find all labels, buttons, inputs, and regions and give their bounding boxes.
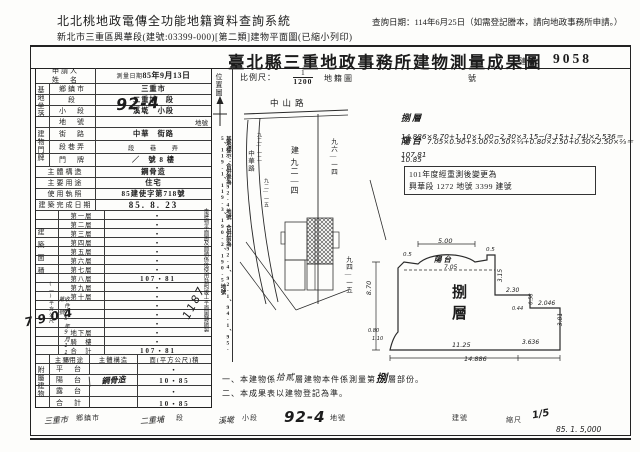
dim-left: 8.70 [365,281,373,295]
query-date-note: 查詢日期：114年6月25日（如需登記謄本，請向地政事務所申請。） [372,16,622,28]
strip-site-note: 基地標示：合併後為92-4地號 合併前為92-4、92-1、94-1、95-5、… [219,136,230,362]
strip-label-building-no: 建號 [452,413,468,423]
applicant-label: 申請人 姓 名 [36,68,95,83]
print-run-note: 85. 1. 5,000 [556,425,601,434]
table-row: 街 路中華 街路 [36,128,211,141]
table-row: 第三層・ [36,229,211,238]
parcel-main-label: 九二—四 [290,158,298,210]
dim-right-lower: 3.81 [557,313,564,326]
north-arrow-icon [213,96,227,128]
building-no-label: 建號： [519,56,543,67]
table-row: 第一層・ [36,211,211,220]
cadastral-map-label: 地籍圖 [324,73,354,84]
scale-fraction: 1 1200 [293,69,313,87]
dim-step: 2.30 [506,287,519,294]
dim-bottom-right: 3.636 [522,339,539,346]
dim-bottom-left: 11.25 [452,341,471,349]
note-1: 一、本建物係拾貳層建物本件係測量第捌層部份。 [222,370,424,386]
table-row: 地 號地號 [36,117,211,128]
remark-line-1: 101年度經重測後變更為 [409,169,591,181]
parcel-left-label-1: 九二—一二 [256,132,261,168]
table-row: 合 計10・85 [36,397,211,408]
strip-label-subsection: 小段 [242,413,258,423]
strip-label-section: 段 [176,413,184,423]
table-row: 申請人 姓 名 測量日期 85年9月13日 [36,68,211,84]
table-row: 使用執照85建使字第718號 [36,189,211,200]
table-row: 段巷弄段 巷 弄 [36,141,211,154]
formula-balcony: 陽台 7.05×0.90+5.00×0.50×⅔+0.80×2.50+0.50×… [401,131,637,167]
table-row: 建築完成日期85. 8. 23 [36,200,211,211]
parcel-main-prefix: 建 [291,145,299,156]
table-row: 第五層・ [36,247,211,256]
table-row: 鄉鎮市三重市 [36,84,211,95]
table-row: 第四層・ [36,238,211,247]
table-row: 第六層・ [36,256,211,265]
no-label: 號 [468,73,476,84]
scanned-survey-document: 北北桃地政電傳全功能地籍資料查詢系統 新北市三重區興華段(建號:03399-00… [0,0,640,452]
building-no-value: 9058 [553,51,592,67]
dim-balcony: 7.05 [444,264,457,271]
table-row: 門 牌／ 號 8 樓 [36,154,211,167]
resurvey-remark-box: 101年度經重測後變更為 興華段 1272 地號 3399 建號 [404,166,596,195]
dim-top: 5.00 [438,237,452,245]
note-2: 二、本成果表以建物登記為準。 [222,388,348,399]
note-1-handwritten-floor: 捌 [376,372,388,385]
road-top-label: 中山路 [270,97,308,109]
system-title: 北北桃地政電傳全功能地籍資料查詢系統 [57,12,291,29]
table-row: 主體構造鋼骨造 [36,167,211,178]
strip-transcribe-note: 本建物平面圖及面積係依使用執照竣工平面圖轉繪製 [202,208,207,406]
site-group-label: 基地坐落 [37,86,44,128]
note-1-handwritten-floors: 拾貳 [276,373,295,383]
document-subtitle: 新北市三重區興華段(建號:03399-000)[第二類]建物平面圖(已縮小列印) [57,30,352,43]
dim-small-b: 0.5 [486,247,495,253]
dim-bump-a: 0.80 [368,328,379,334]
annex-group-label: 附屬建物 [37,366,44,408]
survey-date-cell: 測量日期 85年9月13日 [95,68,211,83]
area-group-label: 建築面積 [37,228,44,308]
form-title: 臺北縣三重地政事務所建物測量成果圖 [228,49,543,73]
strip-hand-parcel: 92-4 [284,408,326,426]
table-row: 主要用途住宅 [36,178,211,189]
strip-hand-township: 三重市 [44,414,69,427]
strip-label-parcel: 地號 [330,413,346,423]
parcel-right-lower-label: 九四—一五 [344,256,351,308]
table-row: 第九層・ [36,283,211,292]
table-row: 第二層・ [36,220,211,229]
table-row: 露 台・ [36,386,211,397]
dim-seg: 2.046 [538,300,555,307]
remark-line-2: 興華段 1272 地號 3399 建號 [409,181,591,193]
table-row: 第七層・ [36,265,211,274]
scale-label: 比例尺： [240,72,276,83]
dim-small-a: 0.5 [403,252,412,258]
road-left-label: 中華路 [246,150,253,192]
dim-right-upper: 3.15 [497,269,504,282]
bottom-rule [30,438,631,440]
floor-plan-label: 捌層 [450,284,465,338]
parcel-left-label-2: 九二—一五 [263,178,268,214]
strip-hand-section: 二重埔 [140,414,165,427]
strip-hand-subsection: 溪墘 [218,414,235,426]
receipt-stamp-text: 收件85年9月11日第 號 [57,296,68,368]
strip-label-township: 鄉鎮市 [76,413,100,423]
dim-bump-b: 1.10 [372,336,383,342]
table-row: 陽 台鋼骨造10・85 [36,375,211,386]
dim-bottom-total: 14.886 [464,355,487,363]
handwritten-parcel-number: 92-4 [116,93,161,114]
strip-label-scale: 縮尺 [506,415,522,425]
dim-small-d: 0.44 [512,306,523,312]
dim-small-c: 0.58 [529,293,535,304]
strip-right-border [232,68,233,362]
table-row: 第八層107・81 [36,274,211,283]
address-group-label: 建物門牌 [37,130,44,168]
parcel-right-label: 九六—一四 [329,138,336,194]
